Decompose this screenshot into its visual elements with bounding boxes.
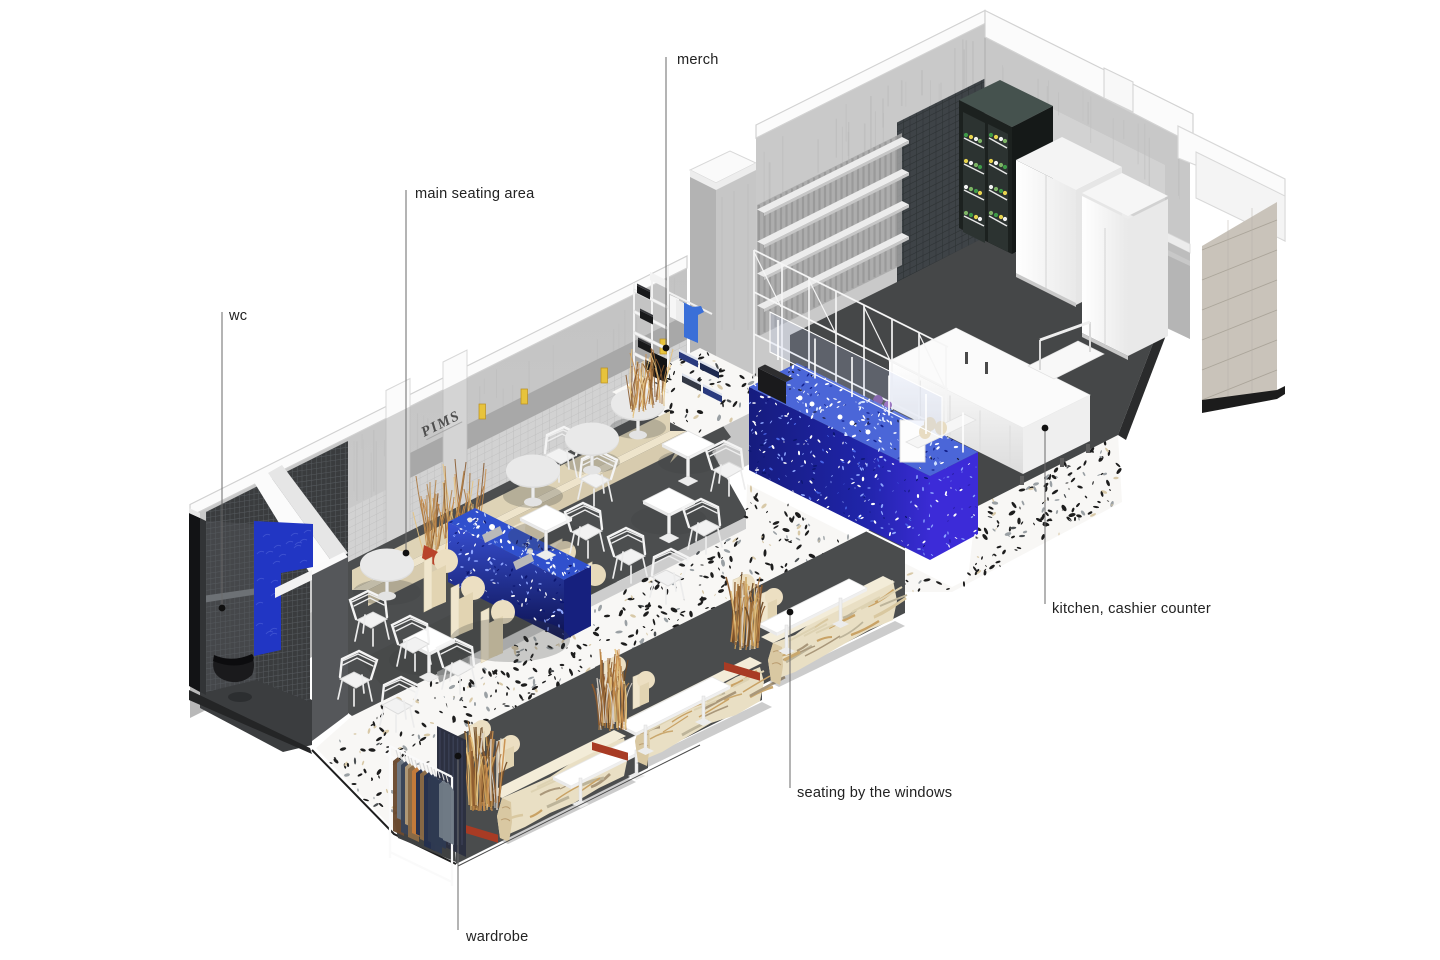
svg-text:wardrobe: wardrobe xyxy=(465,929,528,945)
svg-text:kitchen, cashier counter: kitchen, cashier counter xyxy=(1052,601,1211,617)
svg-text:wc: wc xyxy=(228,308,247,324)
svg-text:seating by the windows: seating by the windows xyxy=(797,785,952,801)
svg-text:main seating area: main seating area xyxy=(415,186,535,202)
svg-text:merch: merch xyxy=(677,52,719,68)
